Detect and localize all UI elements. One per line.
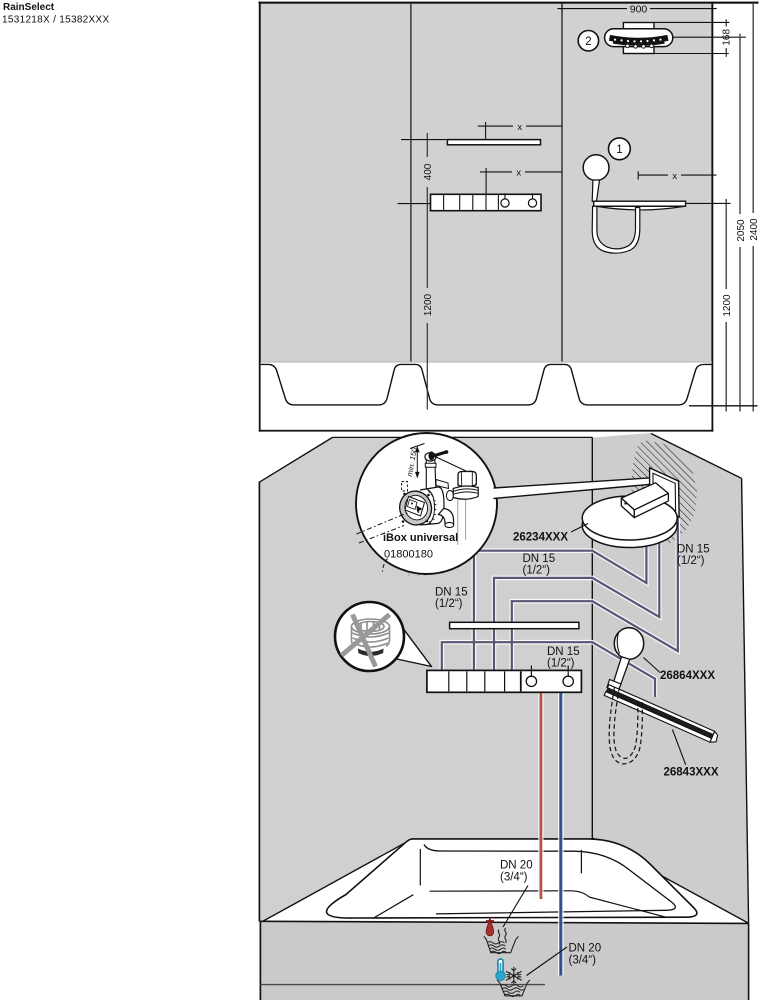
svg-text:DN 15: DN 15 bbox=[523, 553, 556, 565]
svg-text:x: x bbox=[672, 171, 677, 182]
svg-text:x: x bbox=[516, 168, 521, 179]
svg-text:DN 15: DN 15 bbox=[435, 587, 468, 599]
svg-text:x: x bbox=[517, 122, 522, 133]
svg-text:DN 15: DN 15 bbox=[677, 544, 710, 556]
svg-text:iBox universal: iBox universal bbox=[383, 532, 458, 544]
svg-text:(3/4“): (3/4“) bbox=[569, 955, 597, 967]
svg-text:(1/2“): (1/2“) bbox=[677, 555, 705, 567]
svg-text:26843XXX: 26843XXX bbox=[664, 767, 719, 779]
svg-text:168: 168 bbox=[722, 29, 733, 46]
svg-text:900: 900 bbox=[630, 3, 648, 15]
svg-text:1: 1 bbox=[616, 144, 622, 156]
svg-text:2400: 2400 bbox=[749, 218, 759, 241]
svg-text:400: 400 bbox=[423, 163, 434, 180]
svg-text:DN 15: DN 15 bbox=[547, 646, 580, 658]
svg-text:1531218X / 15382XXX: 1531218X / 15382XXX bbox=[2, 15, 109, 26]
svg-text:RainSelect: RainSelect bbox=[3, 2, 55, 13]
svg-text:2050: 2050 bbox=[736, 219, 747, 242]
svg-text:2: 2 bbox=[585, 36, 591, 48]
svg-text:26234XXX: 26234XXX bbox=[513, 532, 568, 544]
svg-text:1200: 1200 bbox=[722, 294, 733, 317]
svg-text:(1/2“): (1/2“) bbox=[435, 598, 463, 610]
svg-text:DN 20: DN 20 bbox=[500, 860, 533, 872]
svg-text:1200: 1200 bbox=[423, 293, 434, 316]
svg-text:(1/2“): (1/2“) bbox=[523, 565, 551, 577]
svg-text:DN 20: DN 20 bbox=[569, 943, 602, 955]
svg-text:(1/2“): (1/2“) bbox=[547, 658, 575, 670]
svg-text:26864XXX: 26864XXX bbox=[660, 670, 715, 682]
svg-text:01800180: 01800180 bbox=[384, 549, 433, 561]
svg-text:(3/4“): (3/4“) bbox=[500, 872, 528, 884]
